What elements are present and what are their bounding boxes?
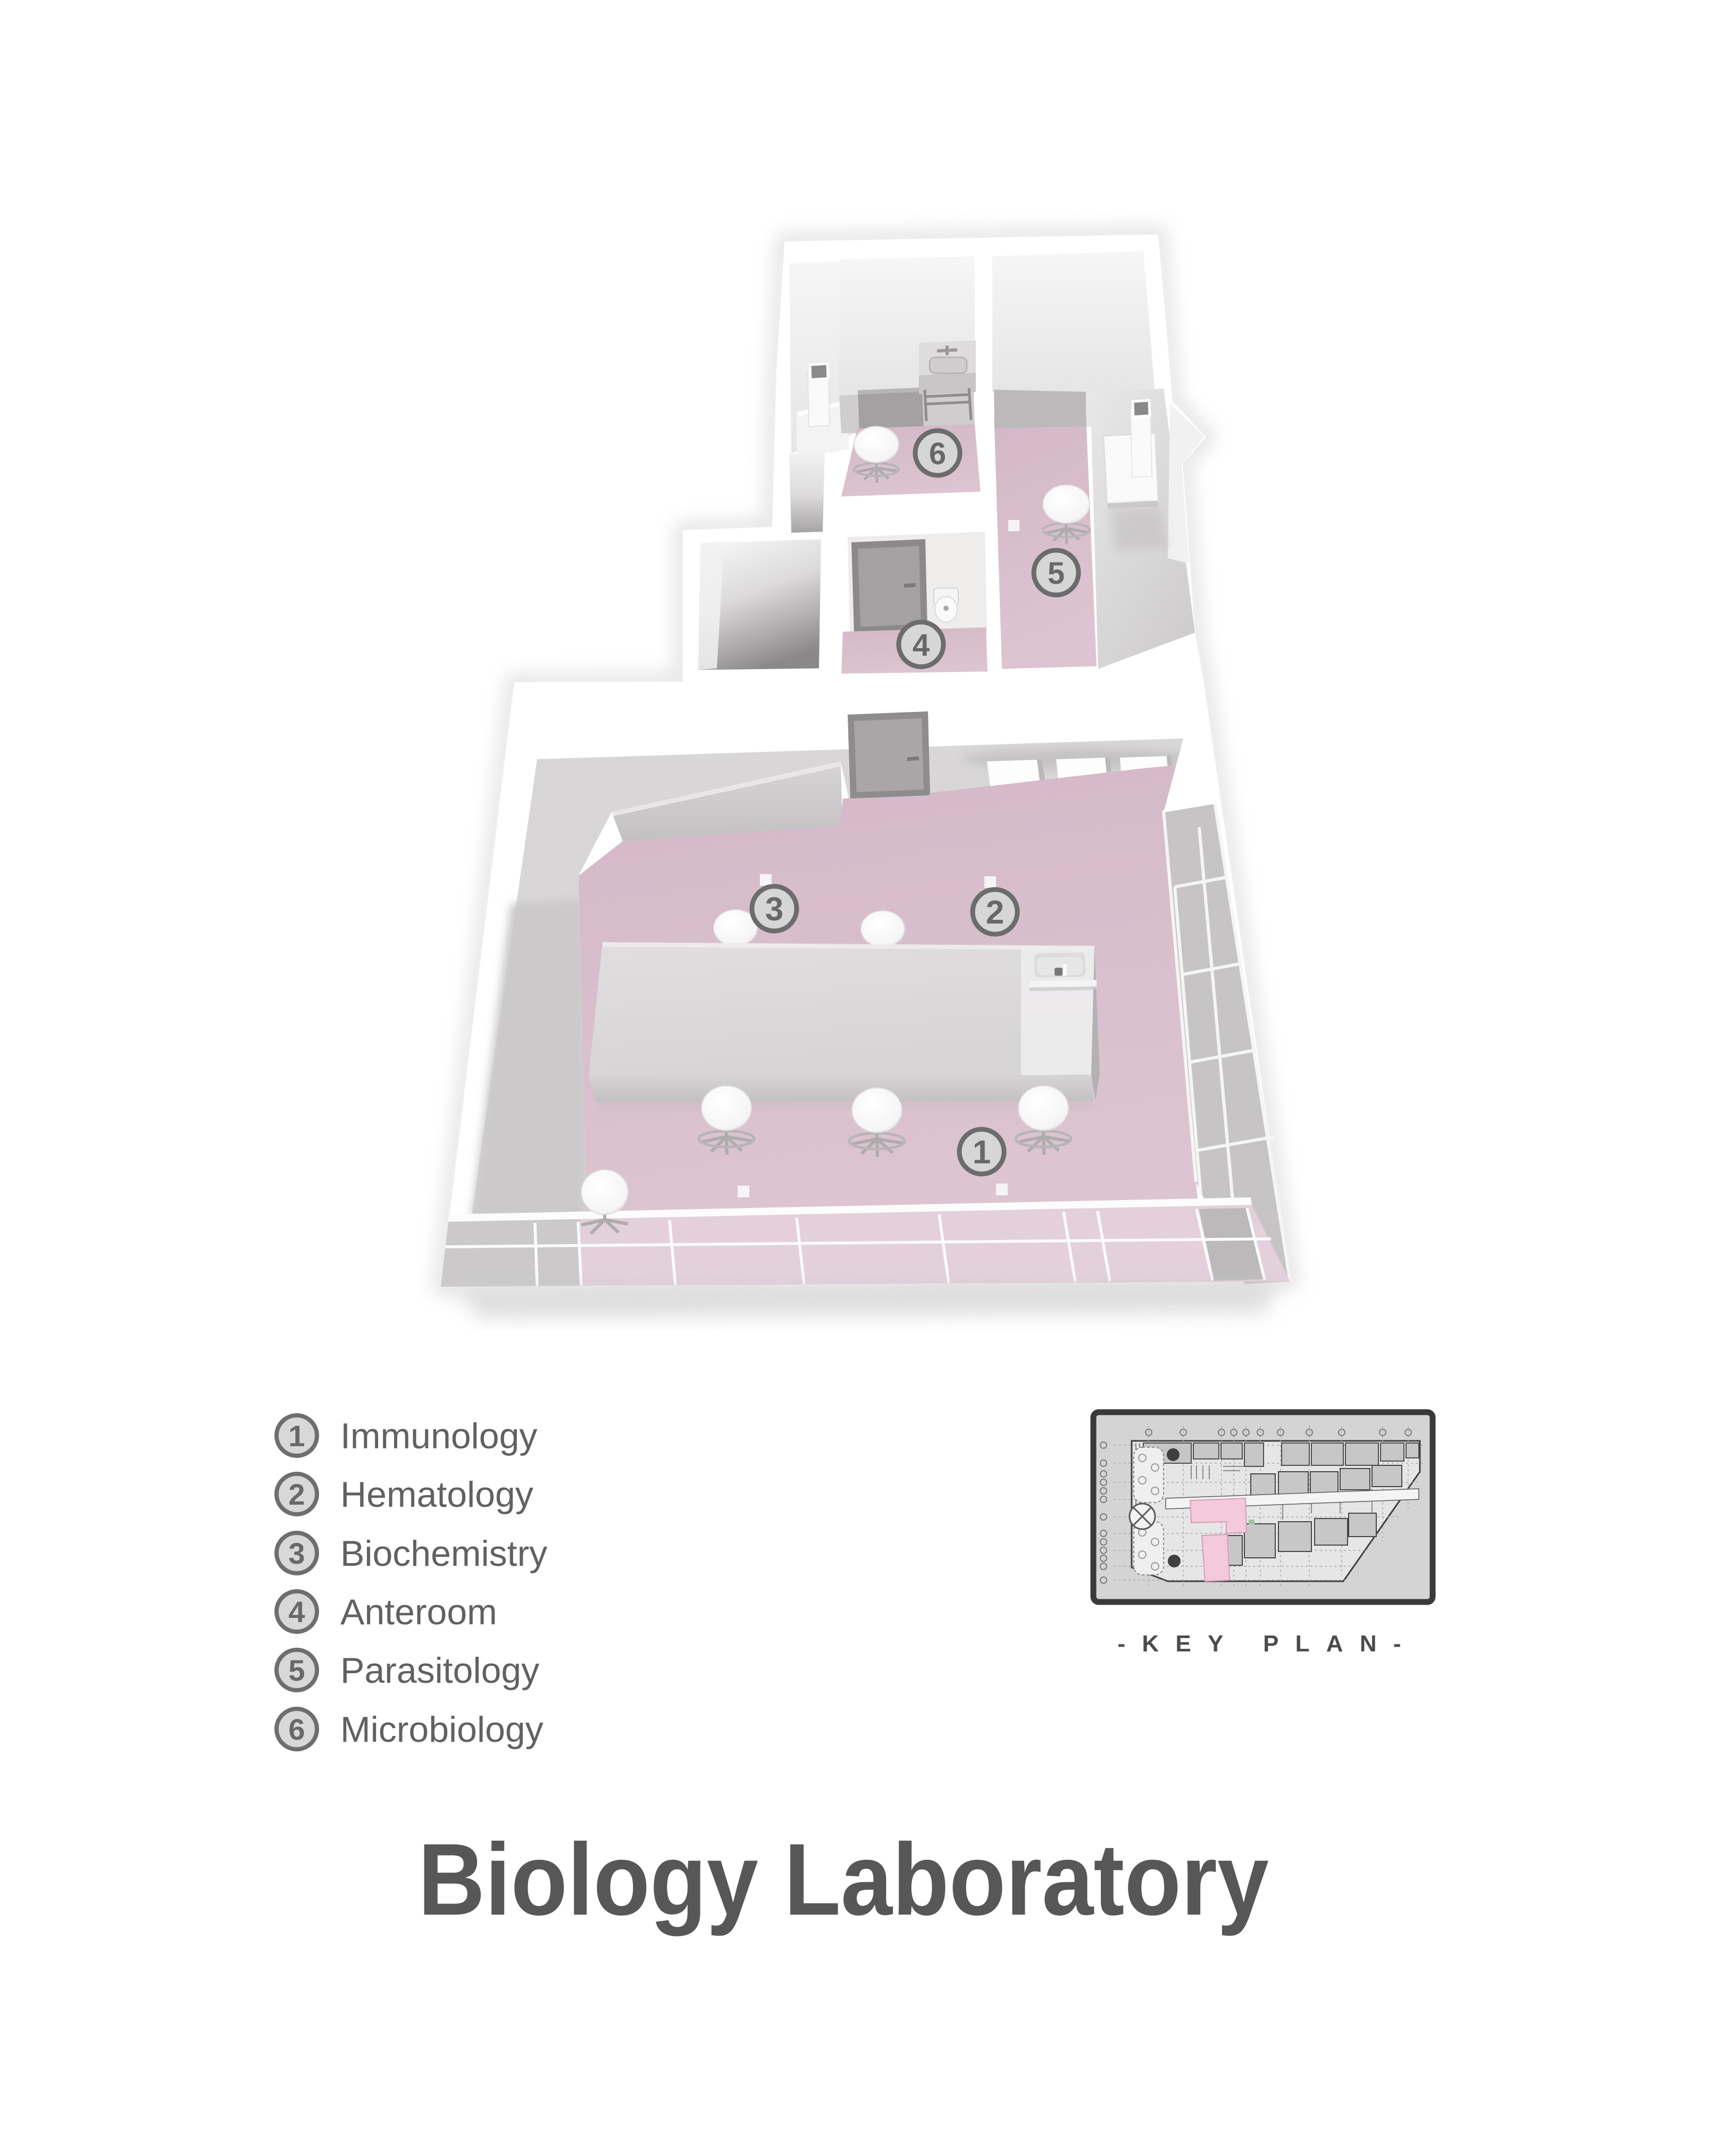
svg-text:6: 6	[929, 437, 946, 471]
svg-text:Anteroom: Anteroom	[340, 1592, 497, 1632]
svg-text:2: 2	[288, 1478, 305, 1511]
svg-text:4: 4	[288, 1595, 305, 1629]
svg-text:1: 1	[288, 1419, 305, 1453]
svg-text:4: 4	[913, 628, 930, 662]
svg-text:Biochemistry: Biochemistry	[340, 1533, 547, 1574]
svg-text:Immunology: Immunology	[340, 1416, 537, 1456]
svg-text:5: 5	[1048, 556, 1065, 591]
svg-text:Hematology: Hematology	[340, 1474, 533, 1515]
svg-text:Microbiology: Microbiology	[340, 1709, 543, 1750]
svg-text:5: 5	[288, 1654, 305, 1687]
svg-text:Parasitology: Parasitology	[340, 1650, 539, 1691]
svg-text:- K E Y P L A N -: - K E Y P L A N -	[1118, 1631, 1408, 1657]
svg-text:1: 1	[973, 1134, 991, 1171]
svg-text:6: 6	[288, 1713, 305, 1746]
svg-text:2: 2	[986, 894, 1004, 931]
svg-text:3: 3	[765, 891, 783, 928]
svg-text:Biology Laboratory: Biology Laboratory	[418, 1822, 1269, 1936]
svg-text:3: 3	[288, 1537, 305, 1570]
